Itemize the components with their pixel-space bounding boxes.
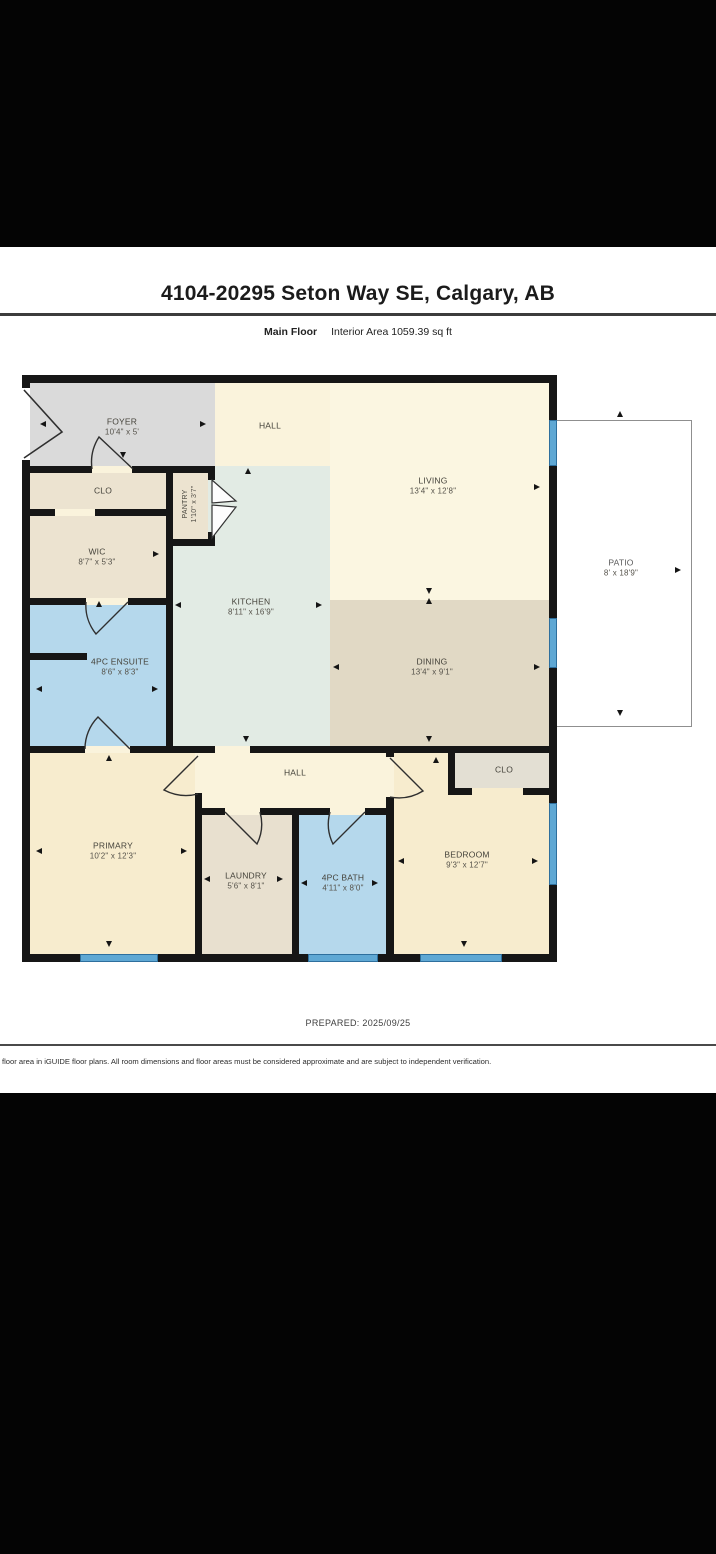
wall xyxy=(386,746,394,757)
dimension-arrow-icon xyxy=(316,602,322,608)
room-label-wic: WIC8'7" x 5'3" xyxy=(78,546,115,567)
dimension-arrow-icon xyxy=(426,588,432,594)
dimension-arrow-icon xyxy=(106,941,112,947)
dimension-arrow-icon xyxy=(617,710,623,716)
room-label-closet: CLO xyxy=(94,485,112,496)
dimension-arrow-icon xyxy=(277,876,283,882)
dimension-arrow-icon xyxy=(124,377,130,383)
dimension-arrow-icon xyxy=(461,941,467,947)
wall xyxy=(95,509,166,516)
window xyxy=(549,618,557,668)
dimension-arrow-icon xyxy=(243,736,249,742)
room-label-kitchen: KITCHEN8'11" x 16'9" xyxy=(228,596,274,617)
window xyxy=(308,954,378,962)
wall xyxy=(30,466,92,473)
room-label-hall-top: HALL xyxy=(259,420,281,431)
room-label-patio: PATIO8' x 18'9" xyxy=(604,557,638,578)
disclaimer-text: floor area in iGUIDE floor plans. All ro… xyxy=(2,1057,714,1066)
wall xyxy=(386,797,394,954)
dimension-arrow-icon xyxy=(532,858,538,864)
dimension-arrow-icon xyxy=(398,858,404,864)
wall xyxy=(130,746,215,753)
dimension-arrow-icon xyxy=(36,686,42,692)
dimension-arrow-icon xyxy=(106,755,112,761)
dimension-arrow-icon xyxy=(153,551,159,557)
window xyxy=(420,954,502,962)
dimension-arrow-icon xyxy=(181,848,187,854)
room-label-dining: DINING13'4" x 9'1" xyxy=(411,656,453,677)
area-label: Interior Area 1059.39 sq ft xyxy=(331,326,452,338)
dimension-arrow-icon xyxy=(200,421,206,427)
dimension-arrow-icon xyxy=(333,664,339,670)
room-label-ensuite: 4PC ENSUITE8'6" x 8'3" xyxy=(91,656,149,677)
wall xyxy=(132,466,215,473)
room-label-pantry: PANTRY1'10" x 3'7" xyxy=(181,486,199,523)
room-label-foyer: FOYER10'4" x 5' xyxy=(105,416,139,437)
floor-label: Main Floor xyxy=(264,326,317,338)
wall xyxy=(202,808,225,815)
dimension-arrow-icon xyxy=(426,598,432,604)
wall xyxy=(365,808,392,815)
window xyxy=(549,803,557,885)
wall xyxy=(128,598,166,605)
wall xyxy=(292,808,299,954)
dimension-arrow-icon xyxy=(534,484,540,490)
room-label-primary: PRIMARY10'2" x 12'3" xyxy=(90,840,136,861)
room-label-closet-bedroom: CLO xyxy=(495,764,513,775)
dimension-arrow-icon xyxy=(372,880,378,886)
window xyxy=(549,420,557,466)
dimension-arrow-icon xyxy=(617,411,623,417)
screenshot-root: 4104-20295 Seton Way SE, Calgary, AB Mai… xyxy=(0,0,716,1554)
dimension-arrow-icon xyxy=(301,880,307,886)
wall xyxy=(448,788,472,795)
dimension-arrow-icon xyxy=(96,601,102,607)
dimension-arrow-icon xyxy=(120,452,126,458)
dimension-arrow-icon xyxy=(675,567,681,573)
dimension-arrow-icon xyxy=(204,876,210,882)
wall xyxy=(195,793,202,954)
wall xyxy=(523,788,557,795)
prepared-date: PREPARED: 2025/09/25 xyxy=(0,1018,716,1028)
dimension-arrow-icon xyxy=(433,757,439,763)
dimension-arrow-icon xyxy=(152,686,158,692)
room-label-bedroom: BEDROOM9'3" x 12'7" xyxy=(444,849,489,870)
dimension-arrow-icon xyxy=(429,377,435,383)
room-label-bath: 4PC BATH4'11" x 8'0" xyxy=(322,872,365,893)
wall xyxy=(30,653,87,660)
dimension-arrow-icon xyxy=(40,421,46,427)
dimension-arrow-icon xyxy=(245,468,251,474)
wall xyxy=(30,509,55,516)
dimension-arrow-icon xyxy=(426,736,432,742)
wall xyxy=(208,466,215,480)
wall xyxy=(250,746,557,753)
room-label-laundry: LAUNDRY5'6" x 8'1" xyxy=(225,870,267,891)
wall xyxy=(22,375,30,388)
wall xyxy=(22,746,85,753)
dimension-arrow-icon xyxy=(36,848,42,854)
dimension-arrow-icon xyxy=(534,664,540,670)
wall xyxy=(208,532,215,546)
room-label-hall-bottom: HALL xyxy=(284,767,306,778)
window xyxy=(80,954,158,962)
wall xyxy=(166,466,173,753)
title-rule xyxy=(0,313,716,316)
dimension-arrow-icon xyxy=(175,602,181,608)
wall xyxy=(22,598,86,605)
wall xyxy=(22,460,30,962)
page-title: 4104-20295 Seton Way SE, Calgary, AB xyxy=(0,282,716,306)
wall xyxy=(22,375,557,383)
footer-divider xyxy=(0,1044,716,1046)
floor-subtitle: Main FloorInterior Area 1059.39 sq ft xyxy=(0,326,716,338)
room-label-living: LIVING13'4" x 12'8" xyxy=(410,475,456,496)
